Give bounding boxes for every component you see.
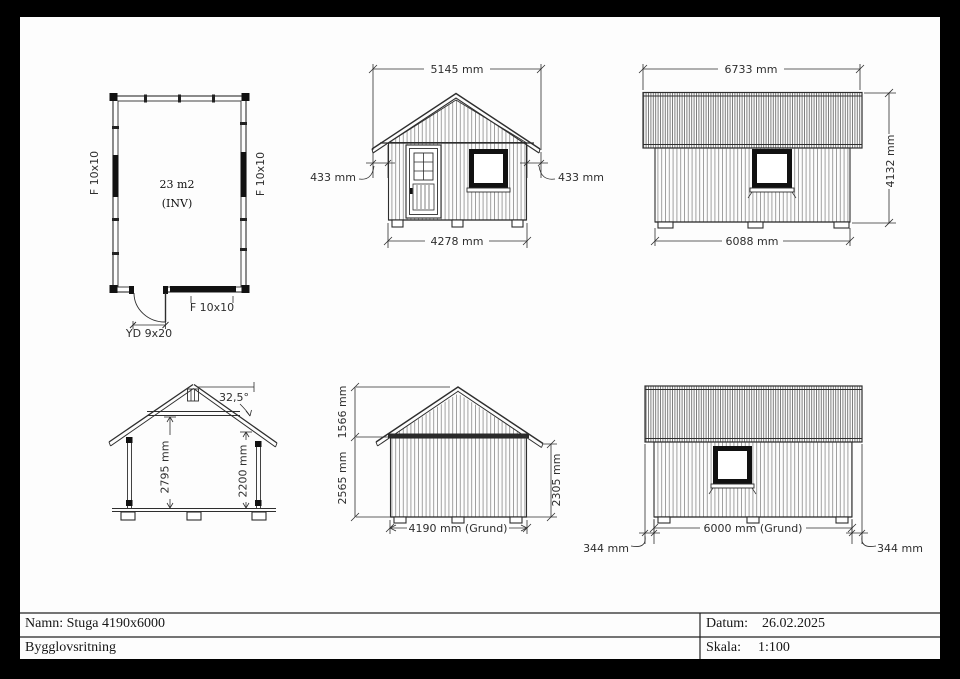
plan-door-jamb (163, 286, 168, 294)
rear-width-label: 4190 mm (Grund) (409, 522, 508, 535)
front-gable (389, 100, 526, 143)
front-overhang-left-label: 433 mm (310, 171, 356, 184)
plan-corner-posts (110, 93, 250, 293)
plan-area-label: 23 m2 (160, 178, 195, 191)
side-width-bottom-label: 6088 mm (726, 235, 779, 248)
title-type-row: Bygglovsritning (25, 640, 116, 656)
plan-door-jamb (129, 286, 134, 294)
side2-wall (654, 442, 852, 517)
title-scale-label: Skala: (706, 640, 741, 656)
section-rafters (109, 385, 277, 444)
plan-window-bottom (170, 286, 236, 292)
front-door (406, 145, 441, 218)
side2-width-label: 6000 mm (Grund) (704, 522, 803, 535)
title-name-row: Namn: Stuga 4190x6000 (25, 616, 165, 632)
front-elevation-view: 5145 mm 433 mm 433 mm 4278 mm (310, 63, 604, 248)
section-height-ridge-label: 2795 mm (159, 441, 172, 494)
plan-door-swing-arc (134, 293, 166, 322)
section-angle-label: 32,5° (219, 391, 249, 404)
plan-window-bottom-label: F 10x10 (190, 301, 234, 314)
floor-plan-view: 23 m2 (INV) F 10x10 F 10x10 F 10x10 YD 9… (88, 93, 267, 340)
rear-elevation-view: 1566 mm 2565 mm 2305 mm 4190 mm (Grund) (336, 383, 563, 535)
side2-roof-band (645, 386, 862, 442)
rear-wall-right-label: 2305 mm (550, 454, 563, 507)
plan-window-left-label: F 10x10 (88, 151, 101, 195)
plan-inner-wall (118, 101, 241, 287)
rear-gable-height-label: 1566 mm (336, 386, 349, 439)
front-width-top-label: 5145 mm (431, 63, 484, 76)
side-footings (658, 222, 849, 228)
rear-wall (391, 438, 527, 517)
rear-wall-left-label: 2565 mm (336, 452, 349, 505)
plan-window-right (241, 152, 247, 197)
side2-overhang-right-label: 344 mm (877, 542, 923, 555)
section-height-wall-label: 2200 mm (237, 445, 250, 498)
front-window (467, 149, 510, 192)
side-window (748, 149, 796, 198)
title-date-label: Datum: (706, 616, 748, 632)
plan-window-right-label: F 10x10 (254, 152, 267, 196)
rear-top-plate (388, 434, 529, 439)
drawing-canvas: 23 m2 (INV) F 10x10 F 10x10 F 10x10 YD 9… (20, 17, 940, 659)
side-elevation-view: 6733 mm 4132 mm 6088 mm (639, 63, 897, 248)
side-height-label: 4132 mm (884, 135, 897, 188)
front-footings (392, 220, 523, 227)
plan-stud-ticks (112, 95, 247, 256)
side2-window (709, 446, 756, 494)
plan-outer-wall (113, 96, 246, 292)
front-overhang-right-label: 433 mm (558, 171, 604, 184)
side-roof-band (643, 93, 862, 149)
plan-window-left (113, 155, 119, 197)
plan-door-label: YD 9x20 (125, 327, 172, 340)
plan-area-note: (INV) (162, 197, 193, 210)
drawing-page: 23 m2 (INV) F 10x10 F 10x10 F 10x10 YD 9… (0, 0, 960, 679)
side-elevation-2-view: 6000 mm (Grund) 344 mm 344 mm (583, 386, 923, 555)
title-scale-value: 1:100 (758, 640, 790, 656)
rear-gable (391, 394, 526, 438)
title-date-value: 26.02.2025 (762, 616, 825, 632)
front-width-bottom-label: 4278 mm (431, 235, 484, 248)
side2-overhang-left-label: 344 mm (583, 542, 629, 555)
section-footings (121, 512, 266, 520)
section-view: 32,5° 2795 mm 2200 mm (109, 382, 277, 520)
side-width-top-label: 6733 mm (725, 63, 778, 76)
